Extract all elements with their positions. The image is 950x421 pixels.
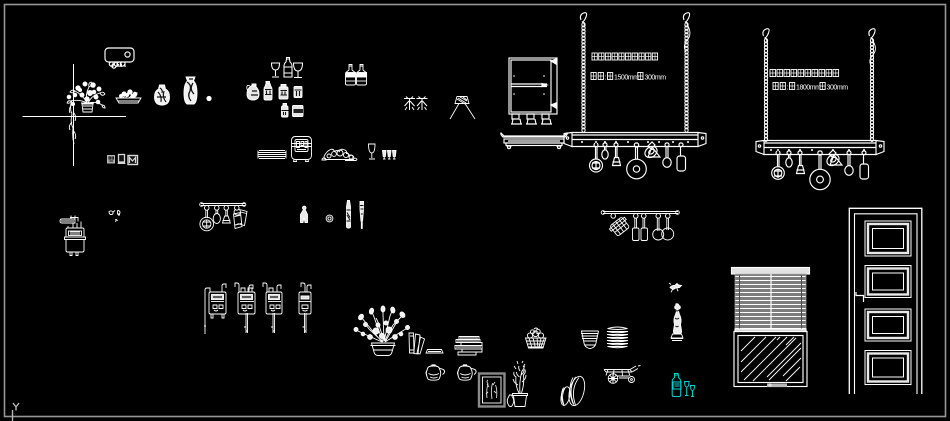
svg-text:1500mm: 1500mm	[614, 75, 639, 82]
svg-text::: :	[787, 83, 789, 92]
svg-text:300mm: 300mm	[827, 85, 849, 92]
svg-text:300mm: 300mm	[645, 75, 667, 82]
svg-text::: :	[605, 73, 607, 82]
svg-text:1800mm: 1800mm	[796, 85, 821, 92]
